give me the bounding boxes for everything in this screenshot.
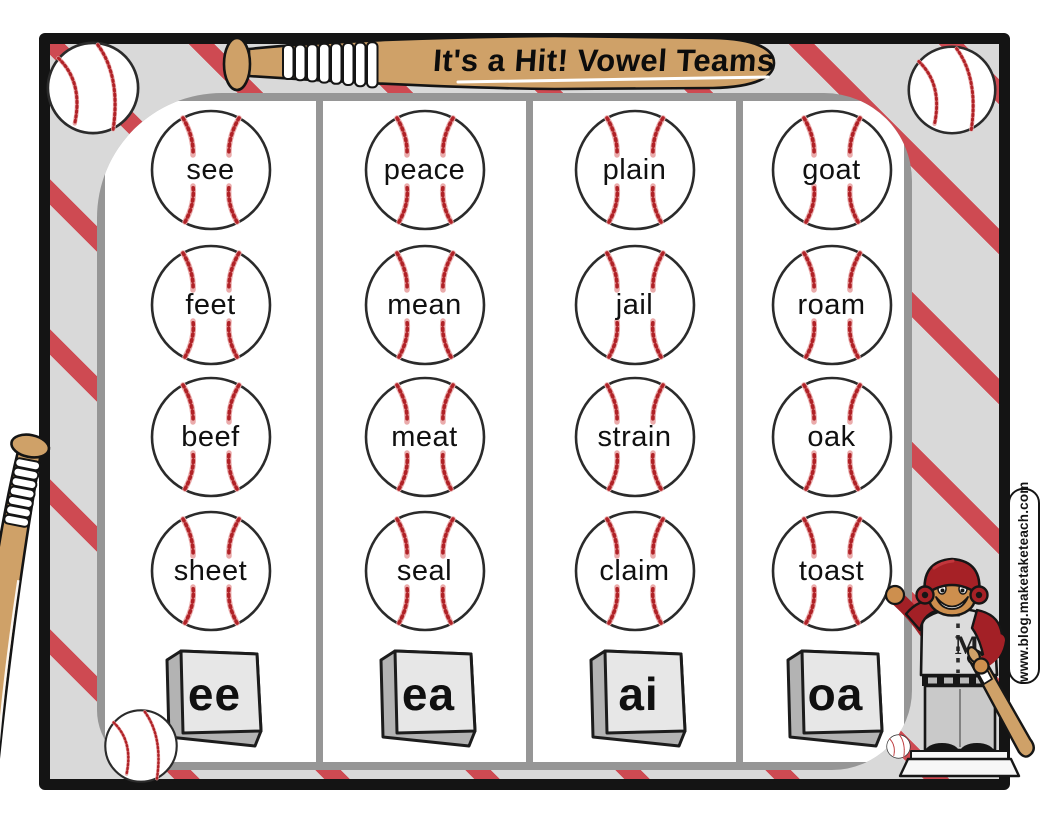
vowel-team-label: oa <box>776 647 888 751</box>
word-baseball: mean <box>362 242 488 368</box>
word-baseball: claim <box>572 508 698 634</box>
word-label: feet <box>148 242 274 368</box>
word-baseball: meat <box>362 374 488 500</box>
word-baseball: beef <box>148 374 274 500</box>
word-label: peace <box>362 107 488 233</box>
word-baseball: goat <box>769 107 895 233</box>
corner-baseball-icon <box>103 708 179 784</box>
word-label: see <box>148 107 274 233</box>
corner-baseball-icon <box>906 44 998 136</box>
word-label: meat <box>362 374 488 500</box>
word-sort-panel: see feet beef sheet ee peace mean meat s… <box>97 93 912 770</box>
word-baseball: roam <box>769 242 895 368</box>
word-label: claim <box>572 508 698 634</box>
column-ea: peace mean meat seal ea <box>323 101 526 762</box>
word-label: jail <box>572 242 698 368</box>
base-plate: ai <box>579 647 691 751</box>
word-label: mean <box>362 242 488 368</box>
word-baseball: see <box>148 107 274 233</box>
word-baseball: feet <box>148 242 274 368</box>
word-baseball: oak <box>769 374 895 500</box>
vowel-team-label: ai <box>579 647 691 751</box>
vowel-team-label: ea <box>369 647 481 751</box>
column-ai: plain jail strain claim ai <box>533 101 736 762</box>
word-label: strain <box>572 374 698 500</box>
word-baseball: toast <box>769 508 895 634</box>
word-label: goat <box>769 107 895 233</box>
word-baseball: sheet <box>148 508 274 634</box>
word-label: toast <box>769 508 895 634</box>
corner-baseball-icon <box>45 40 141 136</box>
word-baseball: plain <box>572 107 698 233</box>
word-baseball: seal <box>362 508 488 634</box>
word-label: oak <box>769 374 895 500</box>
page-title: It's a Hit! Vowel Teams <box>427 43 782 79</box>
website-label: www.blog.maketaketeach.com <box>1008 488 1040 684</box>
word-label: sheet <box>148 508 274 634</box>
word-label: beef <box>148 374 274 500</box>
word-baseball: peace <box>362 107 488 233</box>
word-label: roam <box>769 242 895 368</box>
word-label: plain <box>572 107 698 233</box>
word-baseball: strain <box>572 374 698 500</box>
base-plate: oa <box>776 647 888 751</box>
word-baseball: jail <box>572 242 698 368</box>
base-plate: ea <box>369 647 481 751</box>
word-label: seal <box>362 508 488 634</box>
